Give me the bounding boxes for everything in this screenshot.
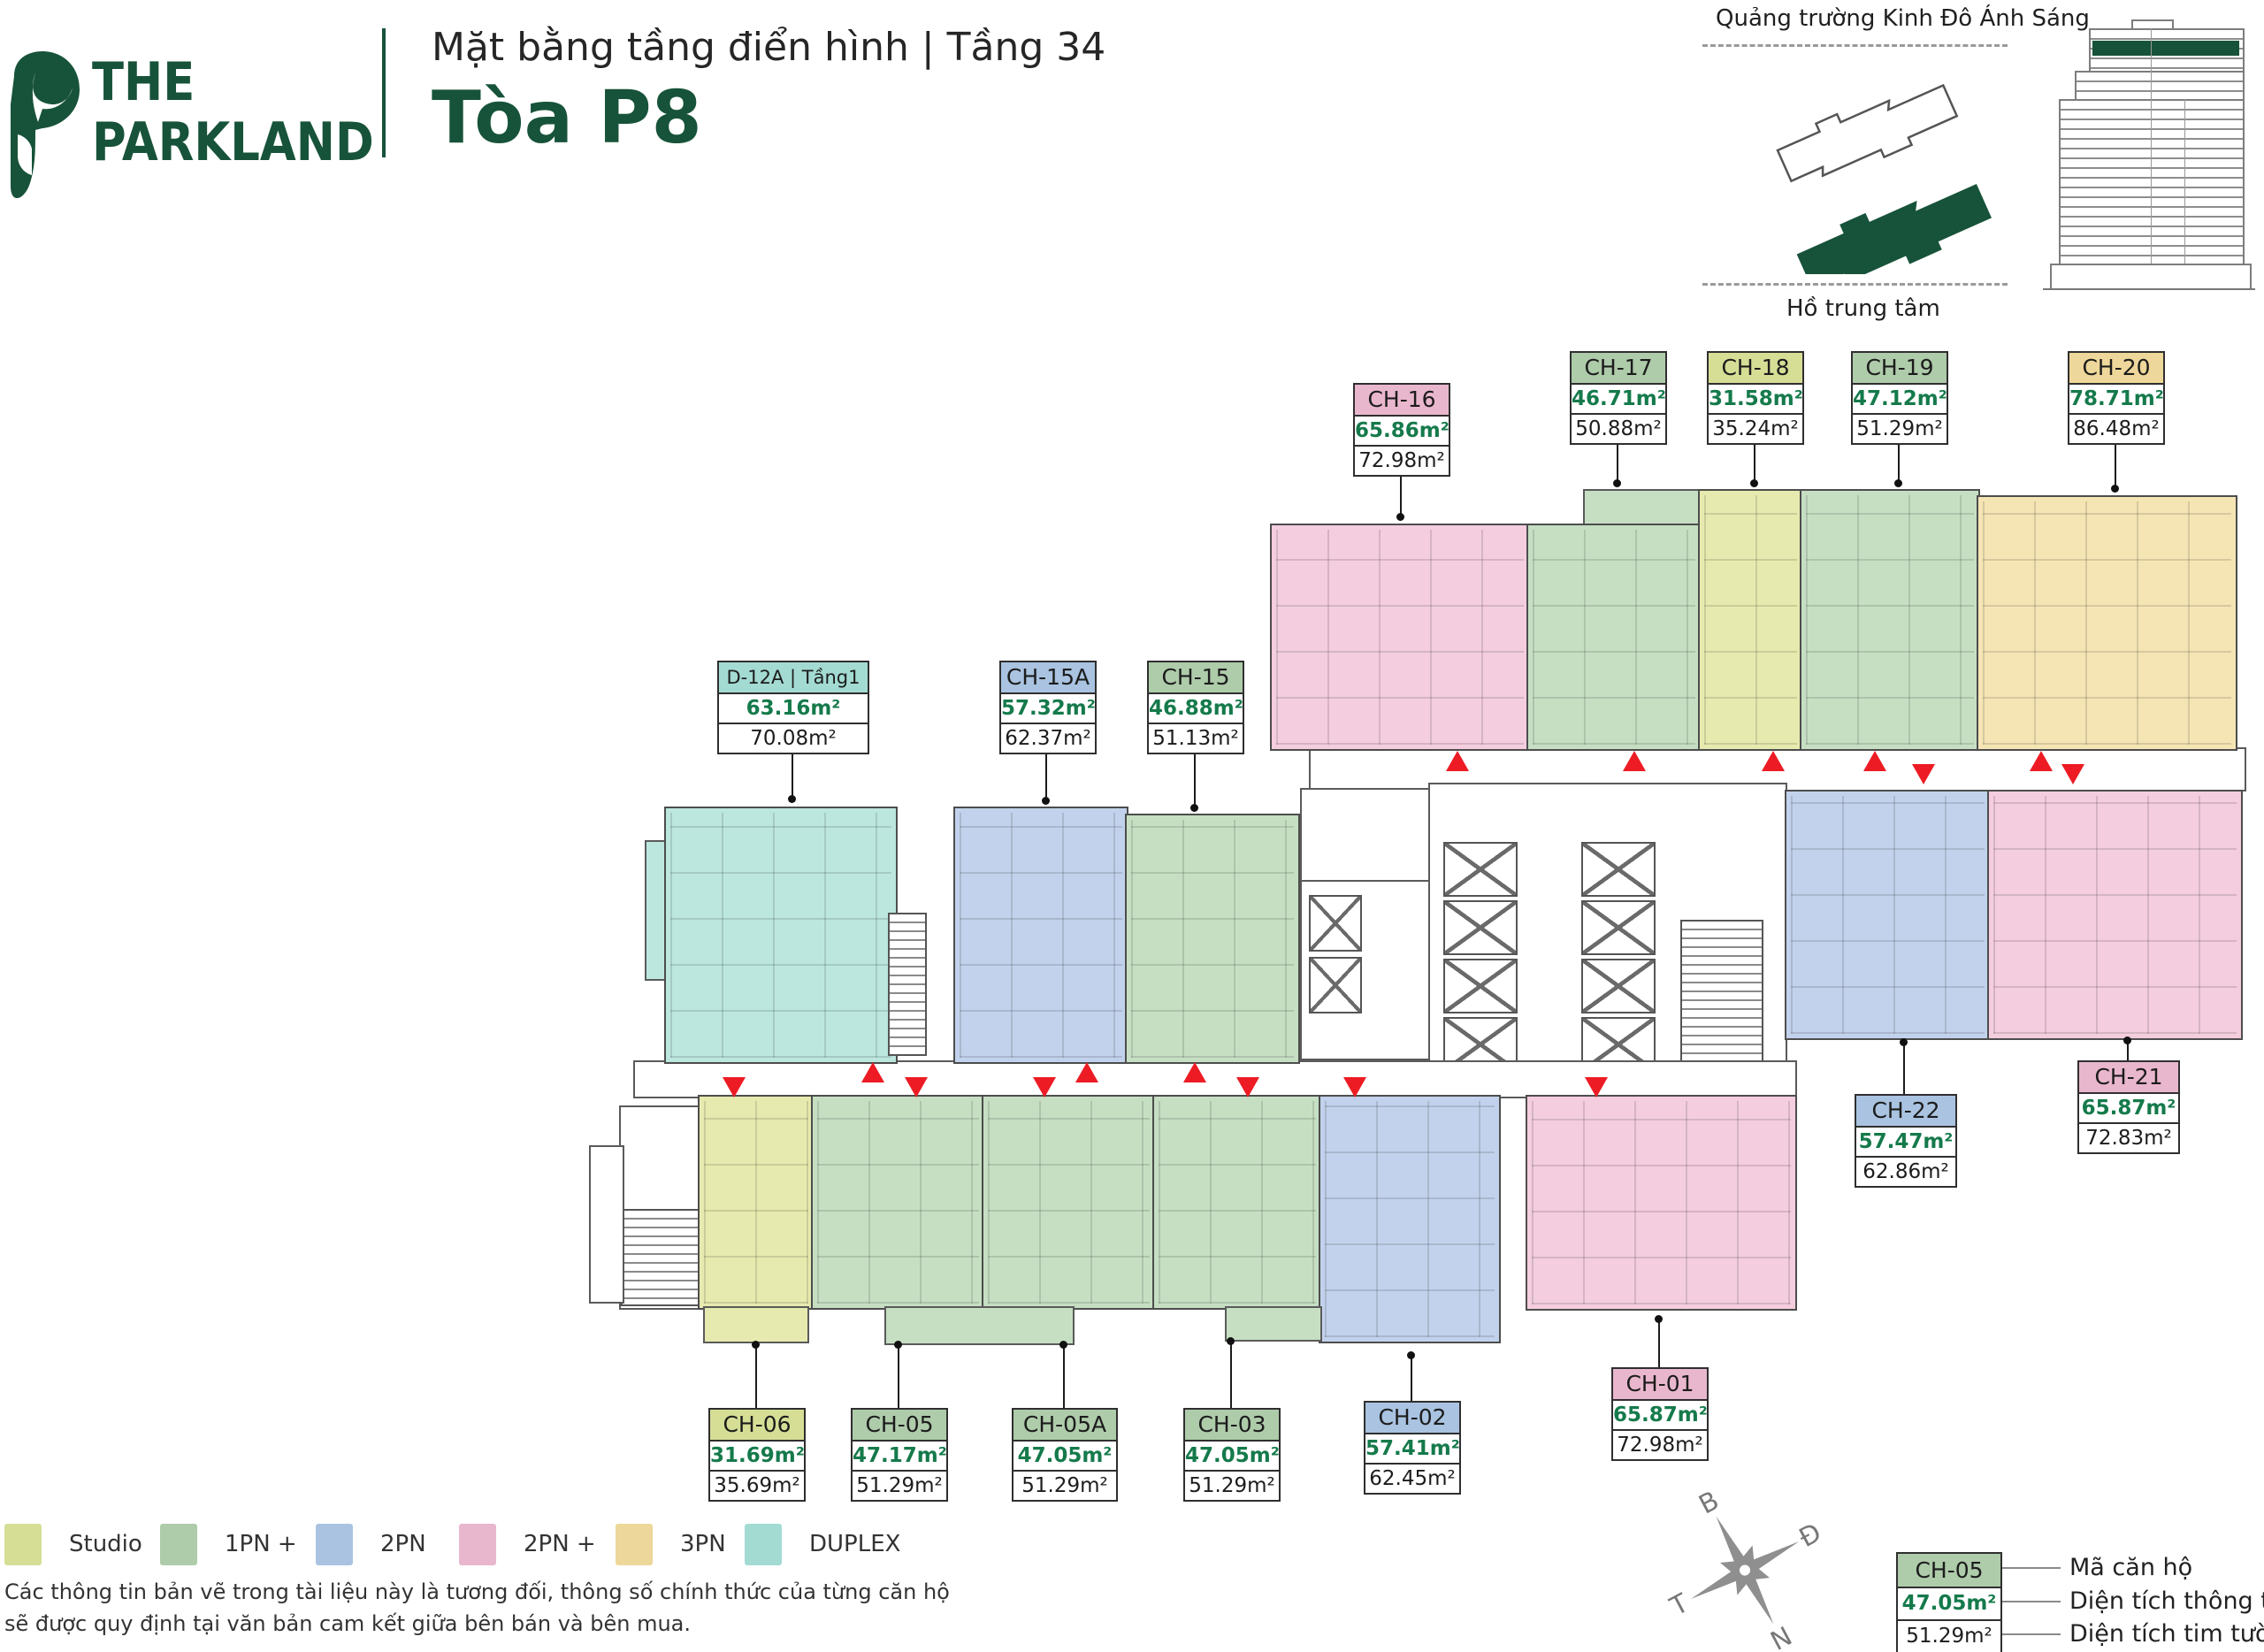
legend-label: 1PN +	[225, 1524, 297, 1565]
unit-label-ch-15[interactable]: CH-15 46.88m² 51.13m²	[1147, 661, 1244, 754]
unit-area-gross: 51.29m²	[1185, 1472, 1279, 1500]
unit-code: CH-05A	[1013, 1410, 1116, 1442]
unit-area-net: 46.88m²	[1149, 694, 1243, 724]
unit-area-gross: 62.37m²	[1001, 724, 1095, 753]
legend-swatch-2pn-plus	[459, 1524, 496, 1565]
unit-area-gross: 35.69m²	[710, 1472, 804, 1500]
unit-area-gross: 62.45m²	[1365, 1465, 1459, 1493]
entry-marker	[1912, 764, 1935, 784]
sitemap-buildings	[1702, 53, 2012, 274]
key-connector	[2000, 1601, 2061, 1602]
entry-marker	[2030, 751, 2053, 771]
elevator-cell	[1581, 842, 1656, 897]
key-row-label-gross: Diện tích tim tường	[2069, 1620, 2264, 1648]
unit-label-ch-20[interactable]: CH-20 78.71m² 86.48m²	[2068, 351, 2165, 445]
svg-text:T: T	[1664, 1587, 1694, 1622]
unit-code: CH-15A	[1001, 662, 1095, 694]
balcony-ch-05-05a	[884, 1306, 1075, 1345]
entry-marker	[1623, 751, 1646, 771]
elevator-cell	[1443, 842, 1518, 897]
apartment-ch-05a[interactable]	[982, 1095, 1156, 1310]
apartment-ch-21[interactable]	[1987, 790, 2243, 1040]
sitemap-top-label: Quảng trường Kinh Đô Ánh Sáng	[1716, 5, 2090, 32]
compass-icon: B Đ N T	[1643, 1484, 1847, 1652]
west-stairwell	[621, 1209, 700, 1306]
unit-area-net: 31.58m²	[1709, 385, 1802, 415]
svg-text:B: B	[1694, 1485, 1724, 1519]
unit-label-ch-19[interactable]: CH-19 47.12m² 51.29m²	[1851, 351, 1948, 445]
unit-area-net: 78.71m²	[2069, 385, 2163, 415]
unit-label-ch-15a[interactable]: CH-15A 57.32m² 62.37m²	[999, 661, 1097, 754]
elevator-cell	[1443, 900, 1518, 955]
unit-code: CH-03	[1185, 1410, 1279, 1442]
unit-code: CH-05	[853, 1410, 946, 1442]
legend-swatch-3pn	[616, 1524, 653, 1565]
duplex-stair	[888, 913, 927, 1056]
entry-marker	[1343, 1077, 1366, 1098]
apartment-ch-03[interactable]	[1152, 1095, 1322, 1310]
entry-marker	[1075, 1062, 1098, 1082]
unit-area-net: 57.41m²	[1365, 1434, 1459, 1465]
legend-label: DUPLEX	[809, 1524, 900, 1565]
key-row-label-net: Diện tích thông thủy	[2069, 1587, 2264, 1615]
apartment-ch-02[interactable]	[1319, 1095, 1501, 1343]
unit-label-ch-02[interactable]: CH-02 57.41m² 62.45m²	[1364, 1401, 1461, 1495]
disclaimer-line2: sẽ được quy định tại văn bản cam kết giữ…	[4, 1611, 691, 1636]
unit-area-net: 47.05m²	[1185, 1442, 1279, 1472]
key-connector	[2000, 1633, 2061, 1635]
apartment-ch-01[interactable]	[1526, 1095, 1797, 1311]
entry-marker	[1863, 751, 1886, 771]
entry-marker	[1762, 751, 1785, 771]
unit-label-ch-05[interactable]: CH-05 47.17m² 51.29m²	[851, 1408, 948, 1502]
key-example-net: 47.05m²	[1898, 1588, 2000, 1621]
unit-code: D-12A | Tầng1	[719, 662, 868, 694]
sitemap-dash-bottom	[1702, 283, 2008, 286]
unit-area-gross: 50.88m²	[1572, 415, 1665, 443]
disclaimer-line1: Các thông tin bản vẽ trong tài liệu này …	[4, 1579, 950, 1604]
unit-area-net: 65.87m²	[1613, 1401, 1707, 1431]
unit-label-ch-01[interactable]: CH-01 65.87m² 72.98m²	[1611, 1367, 1709, 1461]
parkland-logo-icon	[7, 50, 81, 214]
unit-label-ch-03[interactable]: CH-03 47.05m² 51.29m²	[1183, 1408, 1281, 1502]
lower-corridor	[633, 1060, 1797, 1098]
unit-area-net: 57.47m²	[1856, 1128, 1955, 1158]
legend-label: 3PN	[680, 1524, 726, 1565]
elevator-cell	[1581, 900, 1656, 955]
elevator-cell	[1581, 959, 1656, 1013]
unit-code: CH-01	[1613, 1369, 1707, 1401]
apartment-ch-15a[interactable]	[953, 807, 1128, 1064]
unit-code: CH-16	[1355, 385, 1449, 417]
unit-area-net: 57.32m²	[1001, 694, 1095, 724]
key-example-gross: 51.29m²	[1898, 1621, 2000, 1652]
unit-area-net: 31.69m²	[710, 1442, 804, 1472]
entry-marker	[1183, 1062, 1206, 1082]
legend-swatch-duplex	[745, 1524, 782, 1565]
unit-code: CH-21	[2079, 1062, 2178, 1094]
unit-code: CH-06	[710, 1410, 804, 1442]
apartment-ch-19[interactable]	[1800, 489, 1980, 751]
sitemap-dash-top	[1702, 44, 2008, 47]
unit-code: CH-17	[1572, 353, 1665, 385]
west-balcony-strip	[589, 1145, 624, 1304]
unit-code: CH-02	[1365, 1403, 1459, 1434]
unit-area-net: 63.16m²	[719, 694, 868, 724]
apartment-ch-05[interactable]	[811, 1095, 985, 1310]
unit-code: CH-18	[1709, 353, 1802, 385]
apartment-ch-22[interactable]	[1785, 790, 1991, 1040]
entry-marker	[1446, 751, 1469, 771]
unit-label-ch-18[interactable]: CH-18 31.58m² 35.24m²	[1707, 351, 1804, 445]
sitemap-bottom-label: Hồ trung tâm	[1786, 295, 1940, 322]
key-example-label: CH-05 47.05m² 51.29m²	[1896, 1552, 2002, 1652]
unit-code: CH-15	[1149, 662, 1243, 694]
apartment-ch-15[interactable]	[1125, 814, 1300, 1064]
page-subtitle: Mặt bằng tầng điển hình | Tầng 34	[432, 25, 1105, 70]
unit-area-gross: 70.08m²	[719, 724, 868, 753]
header-divider	[382, 28, 386, 157]
apartment-ch-16[interactable]	[1270, 524, 1530, 751]
unit-area-net: 47.05m²	[1013, 1442, 1116, 1472]
apartment-d-12a[interactable]	[664, 807, 898, 1064]
key-row-label-code: Mã căn hộ	[2069, 1554, 2192, 1581]
unit-code: CH-22	[1856, 1096, 1955, 1128]
unit-area-net: 46.71m²	[1572, 385, 1665, 415]
balcony-ch-03	[1225, 1306, 1322, 1342]
legend-swatch-1pn	[160, 1524, 197, 1565]
apartment-ch-20[interactable]	[1977, 495, 2237, 751]
unit-area-gross: 86.48m²	[2069, 415, 2163, 443]
unit-code: CH-20	[2069, 353, 2163, 385]
apartment-ch-17[interactable]	[1526, 524, 1702, 751]
unit-label-ch-05a[interactable]: CH-05A 47.05m² 51.29m²	[1012, 1408, 1118, 1502]
elevation-highlight-floor	[2092, 41, 2239, 56]
unit-label-ch-16[interactable]: CH-16 65.86m² 72.98m²	[1353, 383, 1450, 477]
brand-line1: THE	[92, 51, 195, 113]
unit-area-gross: 51.29m²	[1853, 415, 1947, 443]
svg-text:Đ: Đ	[1794, 1517, 1826, 1553]
entry-marker	[1585, 1077, 1608, 1098]
unit-label-ch-22[interactable]: CH-22 57.47m² 62.86m²	[1855, 1094, 1957, 1188]
unit-label-ch-06[interactable]: CH-06 31.69m² 35.69m²	[708, 1408, 806, 1502]
unit-area-gross: 72.98m²	[1613, 1431, 1707, 1459]
unit-area-gross: 51.29m²	[1013, 1472, 1116, 1500]
legend-swatch-2pn	[316, 1524, 353, 1565]
unit-area-gross: 62.86m²	[1856, 1158, 1955, 1186]
legend-label: 2PN +	[524, 1524, 596, 1565]
unit-area-net: 65.87m²	[2079, 1094, 2178, 1124]
tower-title: Tòa P8	[432, 76, 702, 160]
svg-text:N: N	[1765, 1621, 1796, 1652]
unit-area-net: 47.12m²	[1853, 385, 1947, 415]
floorplan-page: THE PARKLAND Mặt bằng tầng điển hình | T…	[0, 0, 2264, 1652]
unit-area-gross: 51.29m²	[853, 1472, 946, 1500]
apartment-ch-06[interactable]	[698, 1095, 815, 1310]
unit-label-ch-21[interactable]: CH-21 65.87m² 72.83m²	[2077, 1060, 2180, 1154]
unit-area-gross: 51.13m²	[1149, 724, 1243, 753]
legend-label: 2PN	[380, 1524, 426, 1565]
entry-marker	[861, 1062, 884, 1082]
entry-marker	[1033, 1077, 1056, 1098]
unit-area-gross: 72.98m²	[1355, 447, 1449, 475]
apartment-ch-18[interactable]	[1698, 489, 1803, 751]
unit-code: CH-19	[1853, 353, 1947, 385]
key-example-code: CH-05	[1898, 1554, 2000, 1588]
elevator-cell	[1443, 959, 1518, 1013]
unit-area-net: 47.17m²	[853, 1442, 946, 1472]
entry-marker	[723, 1077, 746, 1098]
unit-area-gross: 35.24m²	[1709, 415, 1802, 443]
entry-marker	[2061, 764, 2084, 784]
unit-label-ch-17[interactable]: CH-17 46.71m² 50.88m²	[1570, 351, 1667, 445]
brand-line2: PARKLAND	[92, 111, 374, 173]
unit-label-d-12a[interactable]: D-12A | Tầng1 63.16m² 70.08m²	[717, 661, 869, 754]
legend-swatch-studio	[4, 1524, 42, 1565]
legend-label: Studio	[69, 1524, 142, 1565]
key-connector	[2000, 1567, 2061, 1569]
unit-area-net: 65.86m²	[1355, 417, 1449, 447]
entry-marker	[905, 1077, 928, 1098]
balcony-ch-06	[703, 1306, 809, 1343]
unit-area-gross: 72.83m²	[2079, 1124, 2178, 1152]
entry-marker	[1236, 1077, 1259, 1098]
core-stairwell	[1680, 920, 1763, 1069]
